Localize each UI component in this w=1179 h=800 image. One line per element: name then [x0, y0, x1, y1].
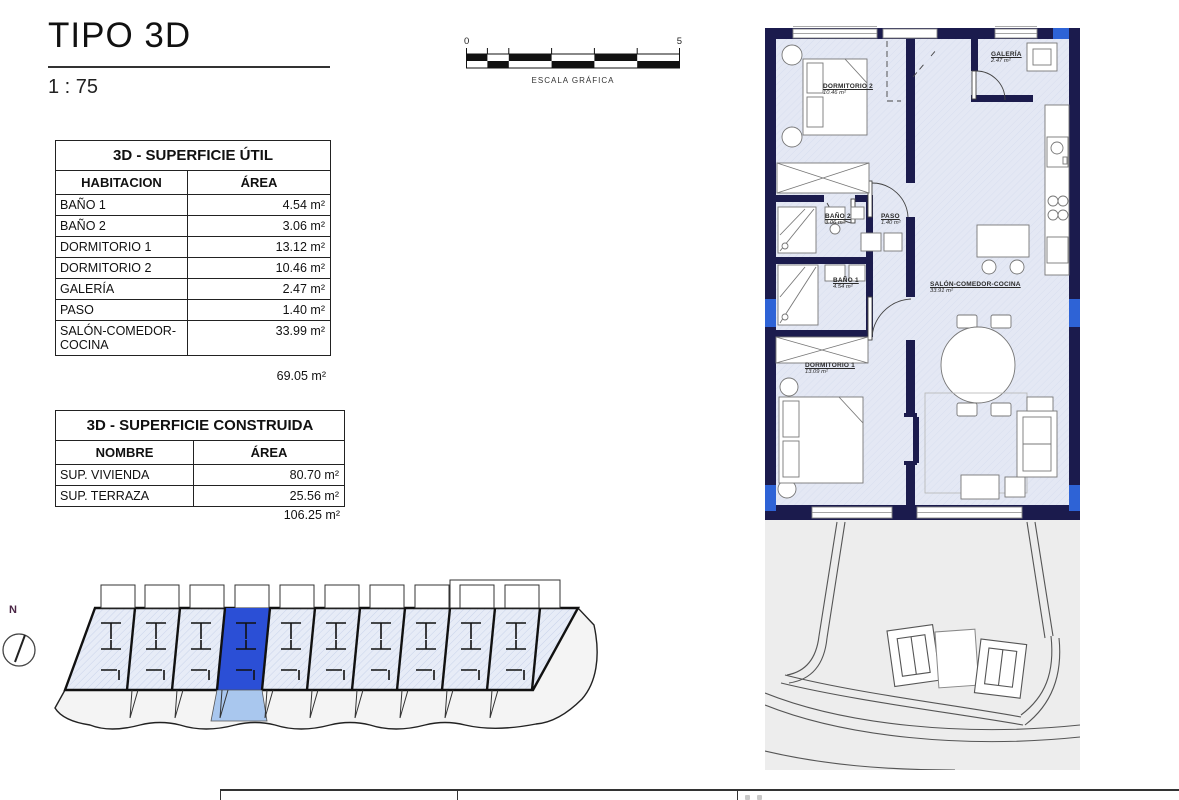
surface-util-table: 3D - SUPERFICIE ÚTIL HABITACION ÁREA BAÑ…	[55, 140, 331, 356]
page-title: TIPO 3D	[48, 16, 191, 56]
room-label-dormitorio2: DORMITORIO 2 10.46 m²	[823, 83, 873, 97]
table-title: 3D - SUPERFICIE CONSTRUIDA	[56, 411, 345, 441]
site-building-strip	[65, 608, 578, 690]
surface-util-total: 69.05 m²	[55, 369, 326, 383]
table-row: GALERÍA2.47 m²	[56, 279, 331, 300]
surface-built-table: 3D - SUPERFICIE CONSTRUIDA NOMBRE ÁREA S…	[55, 410, 345, 507]
table-column-divider	[737, 791, 738, 800]
oven	[1047, 237, 1068, 263]
graphic-scale: 0 5 ESCALA GRÁFICA	[466, 36, 680, 94]
room-label-paso: PASO 1.40 m²	[881, 213, 901, 227]
scale-bar-graphic	[466, 48, 680, 70]
kitchen-sink	[1047, 137, 1068, 167]
garden-area	[765, 520, 1080, 770]
side-table	[782, 45, 802, 65]
room-label-bano2: BAÑO 2 3.06 m²	[825, 213, 851, 227]
table-row: DORMITORIO 113.12 m²	[56, 237, 331, 258]
table-row: DORMITORIO 210.46 m²	[56, 258, 331, 279]
north-label: N	[9, 604, 17, 616]
entry-door-threshold	[883, 29, 937, 38]
table-row: SUP. VIVIENDA80.70 m²	[56, 465, 345, 486]
col-header-area: ÁREA	[188, 171, 331, 195]
bottom-partial-table	[220, 789, 1179, 800]
garden-table	[935, 629, 979, 688]
room-label-salon: SALÓN-COMEDOR-COCINA 33.91 m²	[930, 281, 1021, 295]
plan-sheet: TIPO 3D 1 : 75 0 5 ESCALA GRÁFICA 3D - S…	[0, 0, 1179, 800]
room-label-galeria: GALERÍA 2.47 m²	[991, 51, 1022, 65]
surface-built-total: 106.25 m²	[55, 508, 340, 522]
side-table	[782, 127, 802, 147]
floor-plan-drawing	[765, 25, 1080, 770]
stool	[1010, 260, 1024, 274]
table-row: BAÑO 23.06 m²	[56, 216, 331, 237]
site-key-plan	[45, 575, 600, 750]
title-underline	[48, 66, 330, 68]
scale-start: 0	[464, 36, 469, 47]
col-header-area: ÁREA	[194, 441, 345, 465]
armchair	[1005, 477, 1025, 497]
tv-cabinet	[961, 475, 999, 499]
drawing-scale: 1 : 75	[48, 76, 98, 99]
faint-glyph	[757, 795, 762, 800]
stool	[982, 260, 996, 274]
table-row: SUP. TERRAZA25.56 m²	[56, 486, 345, 507]
bed-dormitorio1	[779, 397, 863, 483]
sink	[851, 207, 864, 219]
shower-bano1	[778, 265, 818, 325]
table-title: 3D - SUPERFICIE ÚTIL	[56, 141, 331, 171]
washing-machine	[1027, 43, 1057, 71]
sun-lounger	[887, 625, 940, 687]
room-label-bano1: BAÑO 1 4.54 m²	[833, 277, 859, 291]
compass-icon	[0, 604, 42, 680]
scale-bar-caption: ESCALA GRÁFICA	[466, 76, 680, 85]
col-header-room: HABITACION	[56, 171, 188, 195]
counter-peninsula	[977, 225, 1029, 257]
table-row: SALÓN-COMEDOR-COCINA33.99 m²	[56, 321, 331, 356]
north-compass: N	[0, 604, 42, 680]
sink-unit	[884, 233, 902, 251]
table-column-divider	[457, 791, 458, 800]
wardrobe	[777, 163, 869, 193]
room-label-dormitorio1: DORMITORIO 1 13.09 m²	[805, 362, 855, 376]
highlighted-terrace	[211, 690, 267, 721]
table-row: BAÑO 14.54 m²	[56, 195, 331, 216]
side-table	[780, 378, 798, 396]
col-header-name: NOMBRE	[56, 441, 194, 465]
wardrobe	[776, 337, 868, 363]
sink-unit	[861, 233, 881, 251]
floor-plan: DORMITORIO 2 10.46 m² GALERÍA 2.47 m² BA…	[765, 25, 1080, 770]
table-row: PASO1.40 m²	[56, 300, 331, 321]
faint-glyph	[745, 795, 750, 800]
sun-lounger	[974, 639, 1026, 698]
scale-end: 5	[677, 36, 682, 47]
shower-bano2	[778, 207, 816, 253]
